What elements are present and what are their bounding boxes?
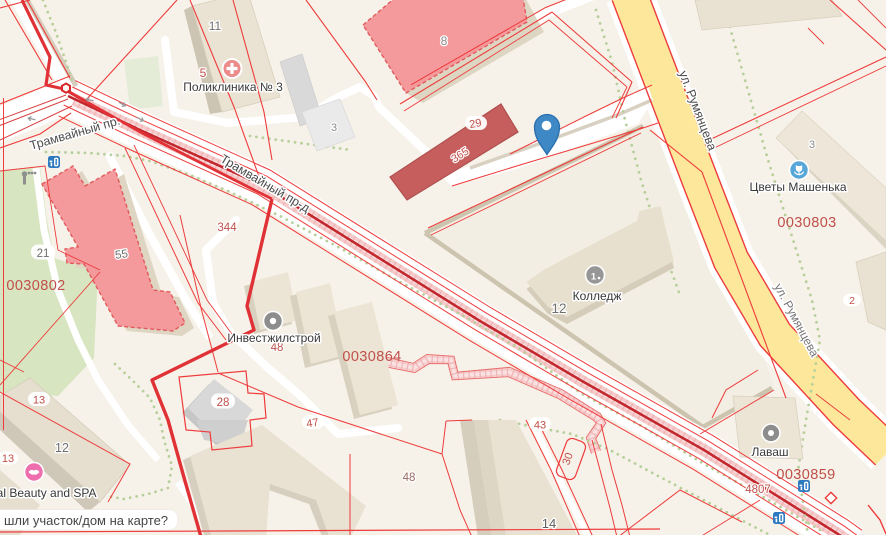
svg-text:8: 8 xyxy=(441,34,448,48)
svg-text:0030864: 0030864 xyxy=(342,349,401,365)
svg-text:3: 3 xyxy=(809,139,815,151)
svg-text:48: 48 xyxy=(403,472,416,484)
svg-text:Поликлиника № 3: Поликлиника № 3 xyxy=(183,80,283,94)
svg-text:0030859: 0030859 xyxy=(776,467,835,483)
svg-text:43: 43 xyxy=(534,420,546,432)
svg-text:0030802: 0030802 xyxy=(6,278,65,294)
svg-text:12: 12 xyxy=(551,301,566,316)
svg-text:Инвестжилстрой: Инвестжилстрой xyxy=(227,331,320,345)
svg-text:14: 14 xyxy=(542,516,556,531)
svg-text:12: 12 xyxy=(55,441,69,455)
svg-text:1: 1 xyxy=(591,272,597,283)
svg-text:ical Beauty and SPA: ical Beauty and SPA xyxy=(0,486,97,500)
svg-text:28: 28 xyxy=(217,397,230,409)
svg-text:шли участок/дом на карте?: шли участок/дом на карте? xyxy=(4,513,168,528)
svg-text:47: 47 xyxy=(306,417,320,431)
svg-text:55: 55 xyxy=(114,248,128,262)
svg-text:13: 13 xyxy=(33,395,45,407)
svg-text:13: 13 xyxy=(2,453,14,465)
svg-text:21: 21 xyxy=(37,248,50,260)
svg-text:Лаваш: Лаваш xyxy=(751,445,788,459)
svg-text:4807: 4807 xyxy=(745,484,771,496)
svg-text:5: 5 xyxy=(200,66,207,80)
svg-text:0030803: 0030803 xyxy=(777,215,836,231)
svg-text:2: 2 xyxy=(849,295,855,307)
svg-text:344: 344 xyxy=(217,222,237,234)
svg-text:Колледж: Колледж xyxy=(573,289,622,303)
svg-text:3: 3 xyxy=(331,122,337,134)
svg-text:29: 29 xyxy=(468,117,482,131)
svg-text:Цветы Машенька: Цветы Машенька xyxy=(749,180,846,194)
svg-text:11: 11 xyxy=(209,19,222,33)
